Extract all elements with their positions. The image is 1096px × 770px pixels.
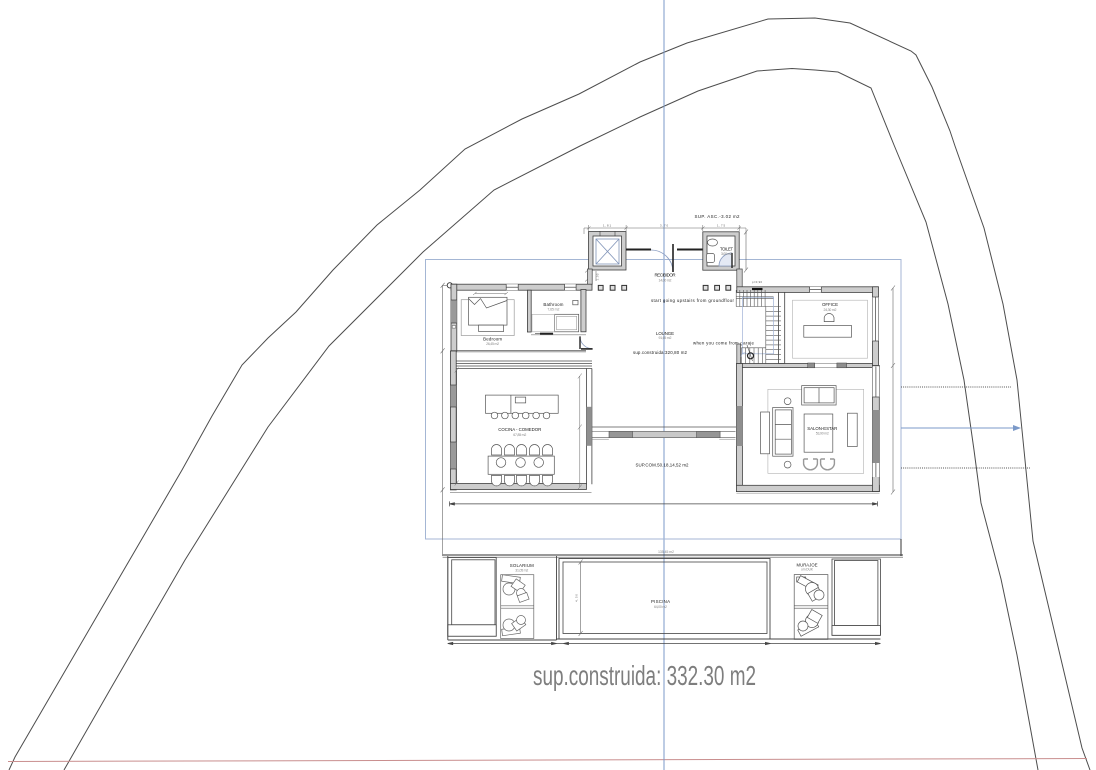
svg-text:sup.construida: 332.30 m2: sup.construida: 332.30 m2 (533, 660, 756, 691)
svg-text:SOLARIUM: SOLARIUM (510, 563, 534, 568)
svg-text:OFFICE: OFFICE (822, 302, 838, 307)
svg-text:sup.construida:320,80 m2: sup.construida:320,80 m2 (633, 350, 688, 355)
svg-text:3,70: 3,70 (660, 224, 668, 228)
svg-text:om DUK: om DUK (801, 568, 814, 572)
svg-text:135,45 m2: 135,45 m2 (658, 550, 674, 554)
svg-text:53,90 m2: 53,90 m2 (816, 432, 829, 436)
svg-text:4,50: 4,50 (575, 594, 579, 602)
svg-text:1,05: 1,05 (596, 273, 600, 281)
svg-text:91,65 m2: 91,65 m2 (659, 336, 672, 340)
svg-text:p=0,90: p=0,90 (752, 280, 762, 284)
svg-text:TOILET: TOILET (720, 247, 733, 252)
svg-text:when you come from garaje: when you come from garaje (693, 341, 755, 346)
svg-text:SUP. ASC.-3.02 m2: SUP. ASC.-3.02 m2 (695, 214, 741, 219)
svg-text:start going upstairs from grou: start going upstairs from groundfloor (651, 298, 735, 303)
svg-text:31,05 m2: 31,05 m2 (515, 569, 528, 573)
svg-text:64,00 m2: 64,00 m2 (654, 605, 667, 609)
svg-text:24,30 m2: 24,30 m2 (824, 308, 837, 312)
svg-text:Bedroom: Bedroom (483, 336, 502, 341)
svg-text:PISCINA: PISCINA (651, 599, 670, 604)
svg-text:1,75: 1,75 (717, 224, 725, 228)
svg-text:26,45 m2: 26,45 m2 (486, 342, 499, 346)
svg-text:7,65 m2: 7,65 m2 (547, 308, 559, 312)
svg-text:67,85 m2: 67,85 m2 (513, 433, 526, 437)
svg-text:14,00 m2: 14,00 m2 (659, 279, 672, 283)
svg-text:SALON-ESTAR: SALON-ESTAR (807, 426, 837, 431)
svg-text:3,00 m2: 3,00 m2 (721, 252, 732, 256)
svg-text:SUP.COM.50.18,14,52 m2: SUP.COM.50.18,14,52 m2 (636, 463, 690, 468)
svg-text:1,81: 1,81 (603, 224, 611, 228)
svg-text:Bathroom: Bathroom (543, 302, 563, 307)
svg-text:RECIBIDOR: RECIBIDOR (655, 273, 676, 278)
svg-text:COCINA - COMEDOR: COCINA - COMEDOR (498, 427, 541, 432)
